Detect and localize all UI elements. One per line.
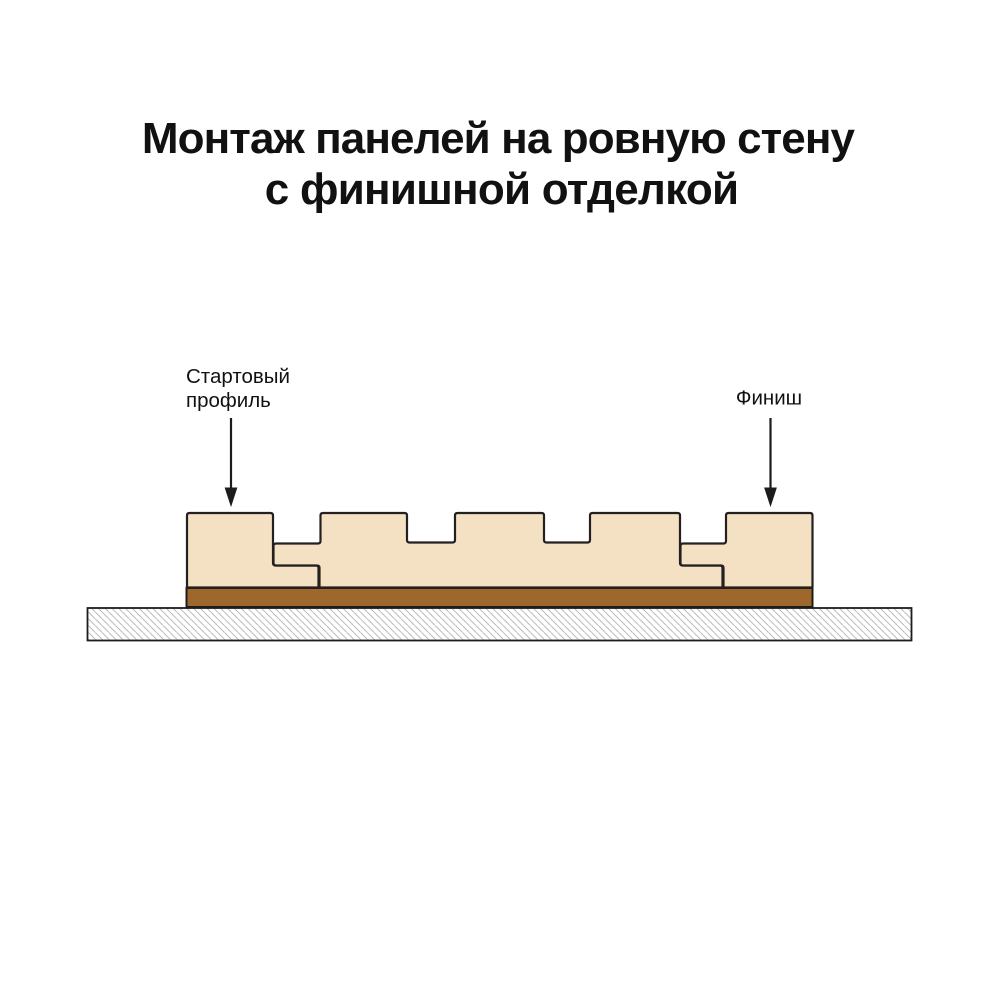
svg-text:Стартовый: Стартовый	[186, 365, 290, 388]
svg-text:профиль: профиль	[186, 389, 271, 412]
svg-text:с финишной отделкой: с финишной отделкой	[265, 165, 739, 214]
svg-text:Финиш: Финиш	[736, 387, 802, 410]
svg-text:Монтаж панелей на ровную стену: Монтаж панелей на ровную стену	[142, 114, 856, 163]
